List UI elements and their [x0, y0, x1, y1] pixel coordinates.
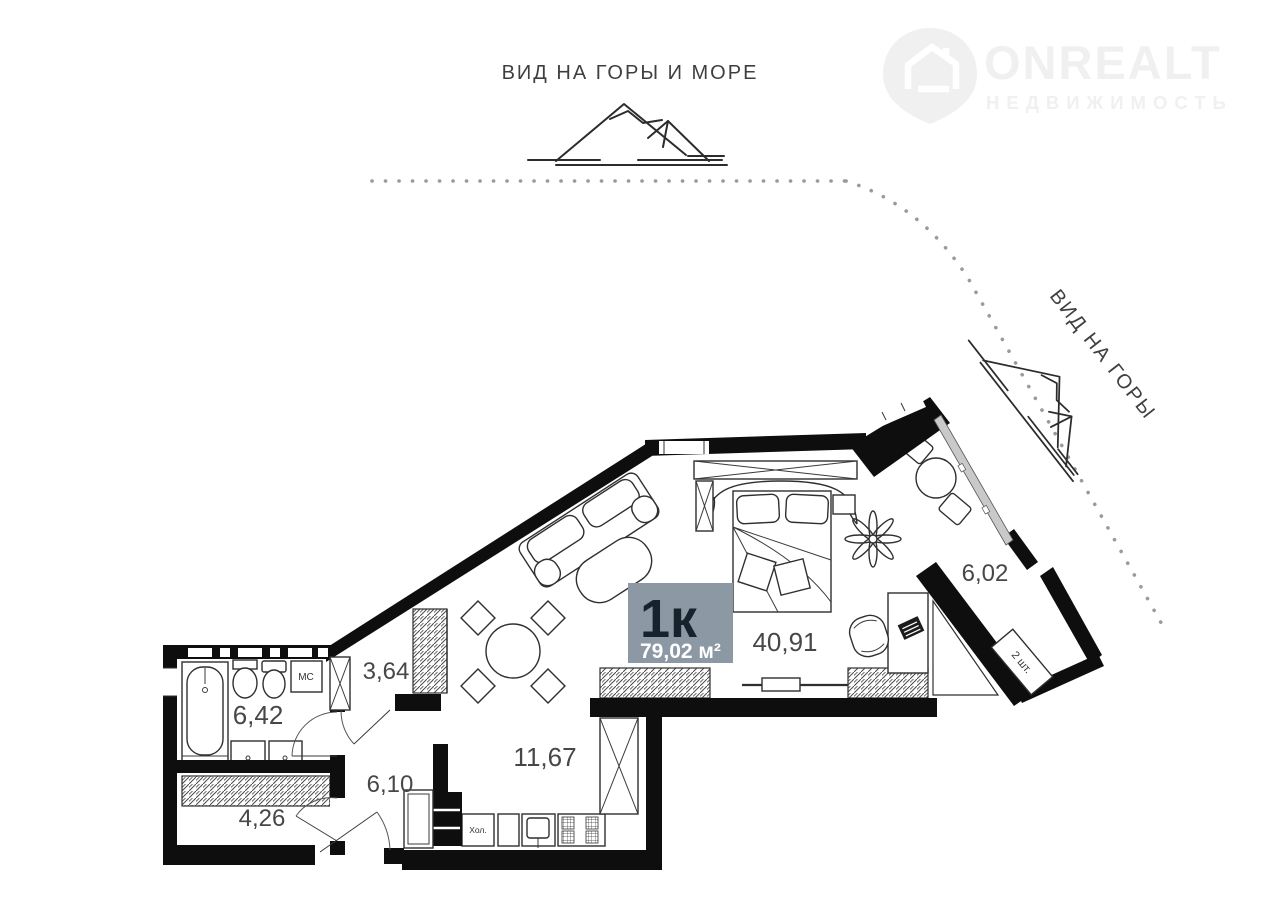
nightstand-icon	[833, 495, 855, 514]
bedroom-wardrobe-left-hatch	[600, 668, 710, 698]
floorplan-canvas: ONREALT НЕДВИЖИМОСТЬ ВИД НА ГОРЫ И МОРЕ …	[0, 0, 1280, 910]
closet-door-arc	[341, 710, 390, 744]
room-label-storage: 4,26	[239, 805, 286, 832]
kitchen-cabinet-icon	[498, 814, 519, 846]
washing-machine-label: МС	[298, 672, 314, 683]
nightstand-icon	[696, 481, 713, 531]
bathroom-door-opening	[330, 712, 345, 755]
dining-chair-icon	[531, 601, 565, 635]
room-label-kitchen: 11,67	[513, 742, 576, 772]
room-label-hallway: 6,10	[367, 771, 414, 798]
bathtub-icon	[182, 662, 228, 768]
area-badge: 1к 79,02 м²	[628, 583, 733, 663]
room-label-closet: 3,64	[363, 658, 410, 685]
plant-icon	[845, 511, 901, 567]
balcony-table-icon	[916, 458, 956, 498]
room-label-living: 40,91	[752, 627, 817, 657]
onrealt-logo: ONREALT НЕДВИЖИМОСТЬ	[883, 28, 1233, 124]
storage-wardrobe-hatch	[182, 776, 330, 806]
overbed-wardrobe-icon	[694, 461, 857, 479]
washing-machine-box: МС	[291, 661, 322, 692]
tall-cabinet-icon	[600, 718, 638, 814]
dining-chair-icon	[531, 669, 565, 703]
closet-wardrobe-hatch	[413, 609, 447, 693]
view-label-side: ВИД НА ГОРЫ	[1045, 286, 1160, 424]
dining-table-icon	[486, 624, 540, 678]
mountains-icon-top	[528, 104, 727, 165]
toilet-icon	[233, 660, 257, 698]
stove-icon	[558, 814, 605, 846]
tv-console-icon	[742, 678, 848, 691]
dining-chair-icon	[461, 669, 495, 703]
hallway-cabinet-icon	[404, 790, 433, 848]
brand-name: ONREALT	[984, 36, 1222, 89]
brand-subtitle: НЕДВИЖИМОСТЬ	[986, 92, 1233, 113]
room-label-balcony: 6,02	[962, 560, 1009, 587]
apartment-area-label: 79,02 м²	[640, 640, 721, 663]
room-label-bathroom: 6,42	[233, 700, 284, 730]
kitchen-sink-icon	[522, 814, 555, 848]
bidet-icon	[262, 661, 286, 698]
vent-blocks	[188, 648, 328, 657]
bathroom-window	[163, 668, 177, 696]
view-label-top: ВИД НА ГОРЫ И МОРЕ	[502, 62, 759, 84]
dining-chair-icon	[461, 601, 495, 635]
desk-chair-icon	[846, 611, 893, 660]
storage-door-opening	[330, 798, 345, 841]
bedroom-window	[659, 441, 709, 454]
fridge-label: Хол.	[469, 825, 486, 835]
fridge-box: Хол.	[462, 814, 494, 846]
bed-icon	[733, 491, 831, 612]
map-pin-house-icon	[883, 28, 977, 124]
duct-shaft-icon	[330, 657, 350, 710]
